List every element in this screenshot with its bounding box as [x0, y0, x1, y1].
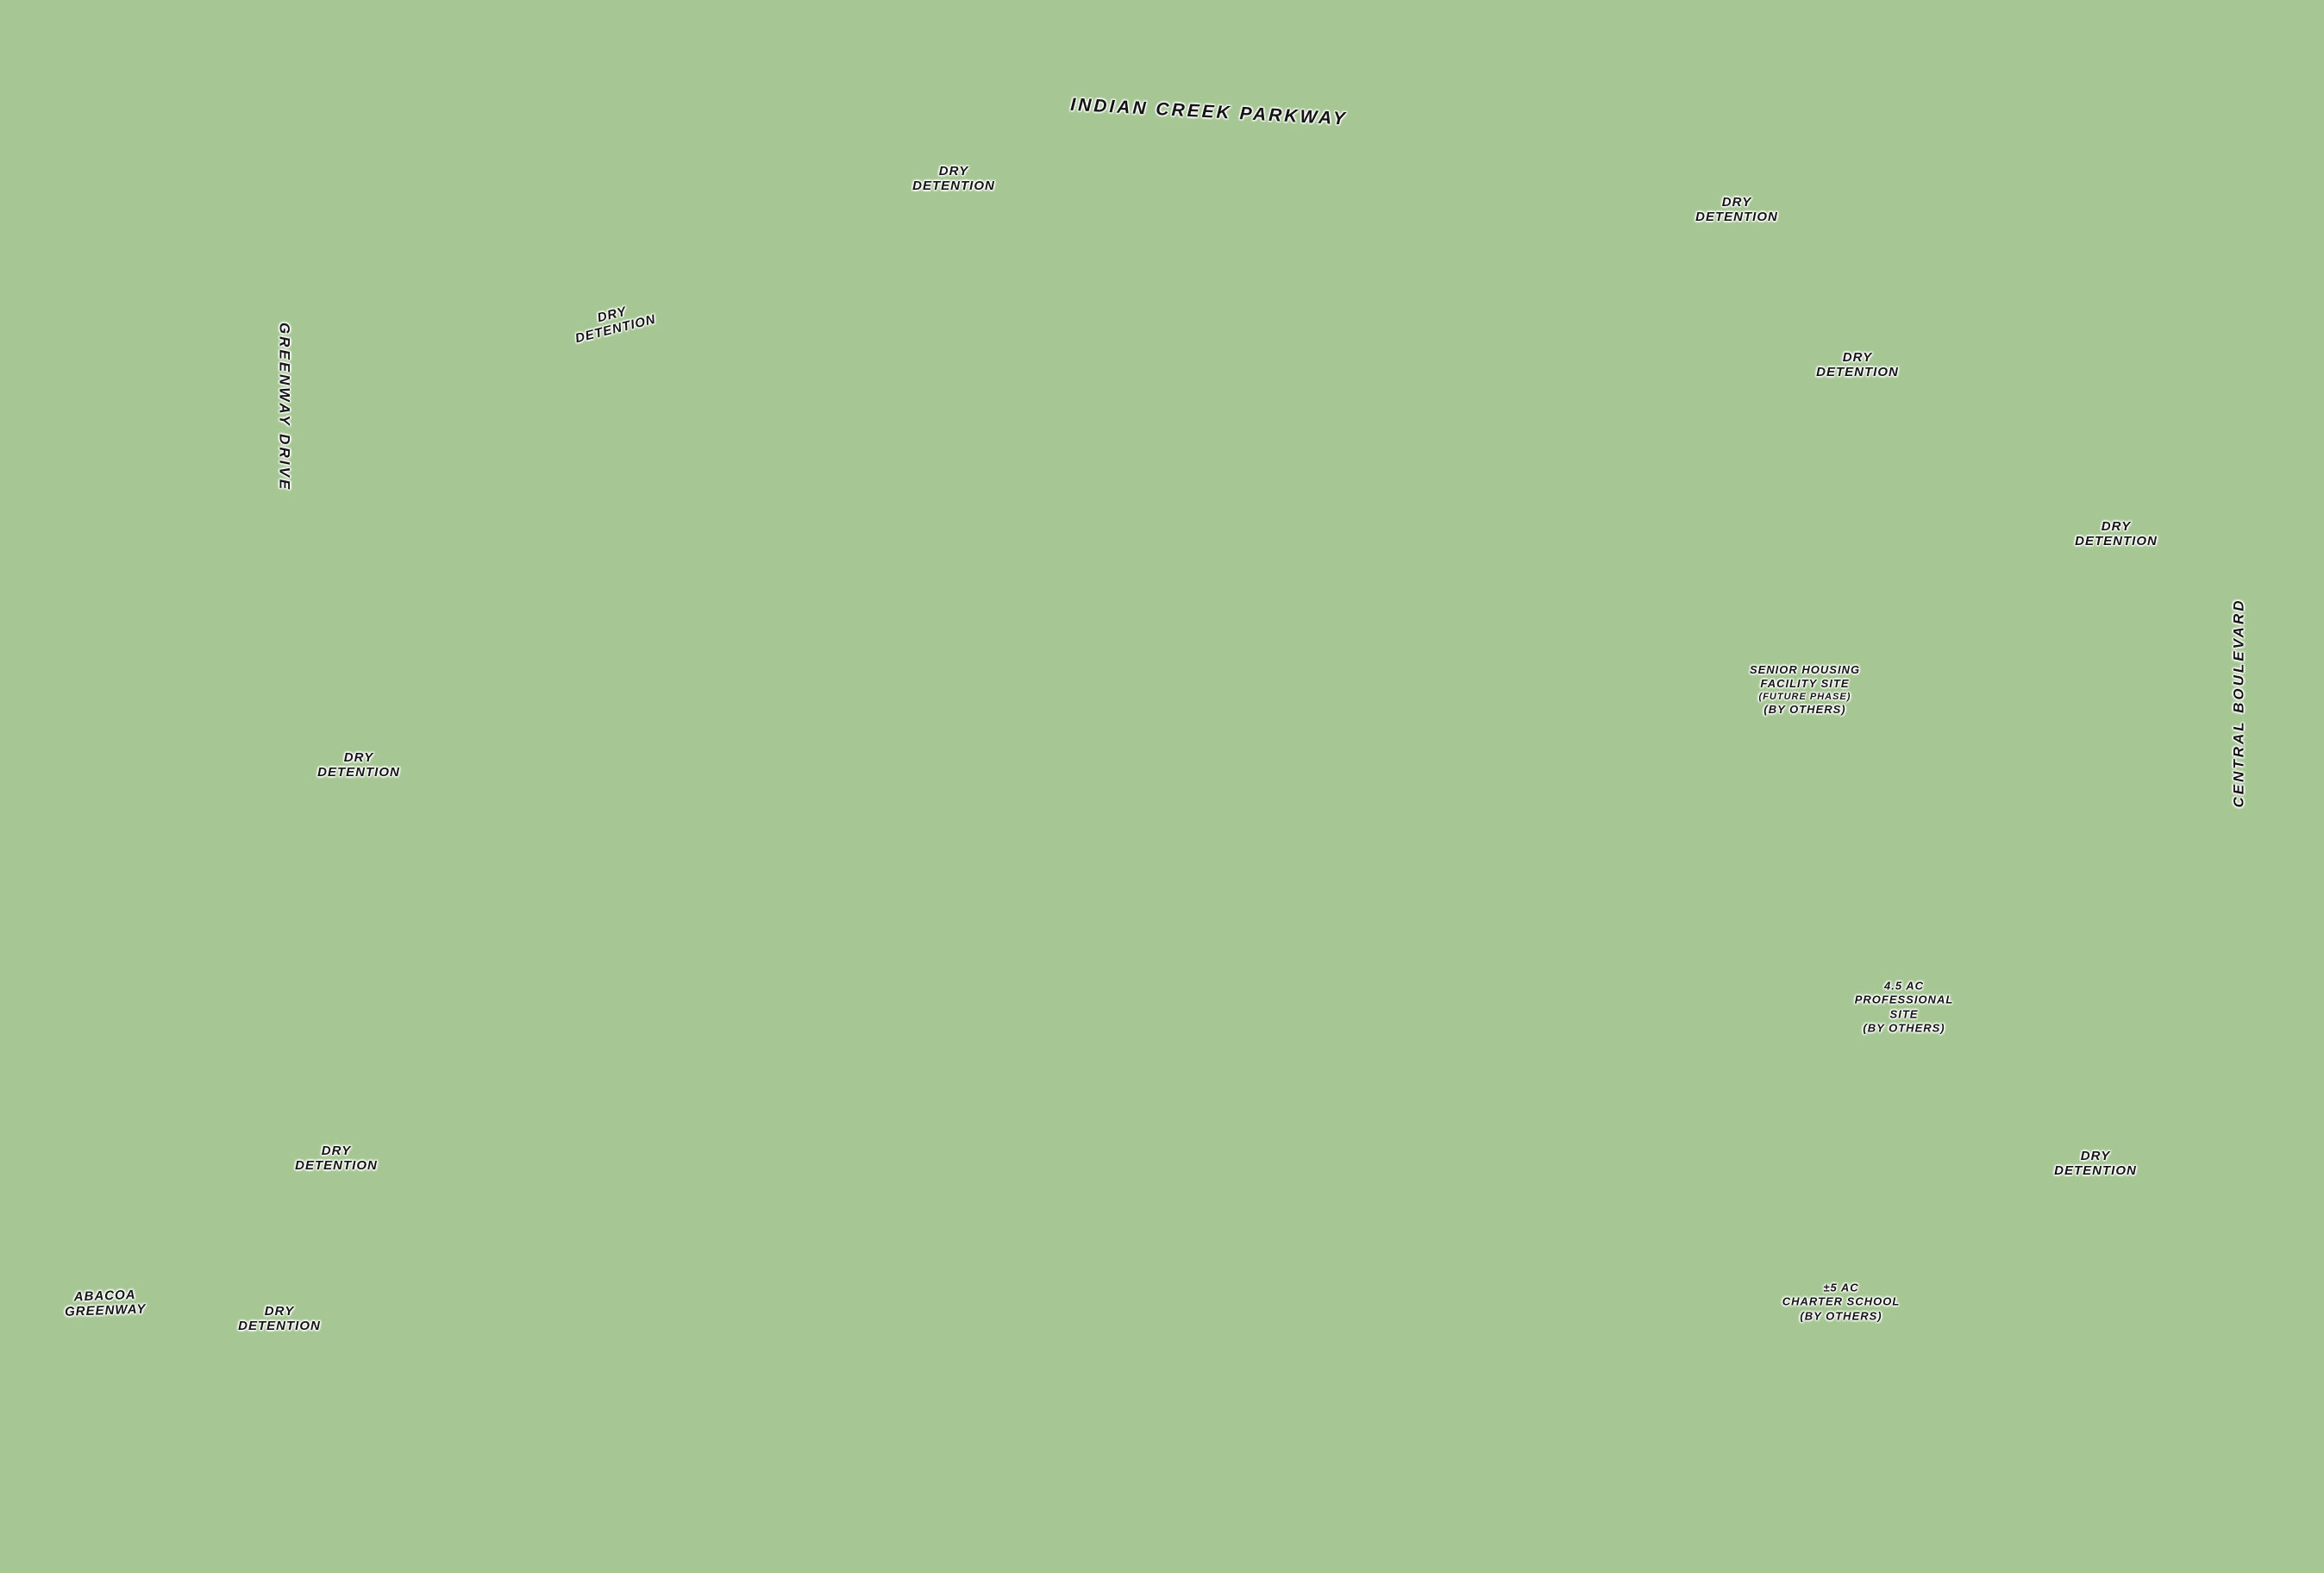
site-label-senior-housing: SENIOR HOUSING FACILITY SITE (FUTURE PHA…	[1736, 663, 1874, 718]
area-label-dry-detention-9: DRY DETENTION	[2054, 1150, 2137, 1179]
site-label-professional: 4.5 AC PROFESSIONAL SITE (BY OTHERS)	[1848, 980, 1960, 1036]
area-label-dry-detention-6: DRY DETENTION	[317, 751, 400, 780]
area-label-dry-detention-5: DRY DETENTION	[2075, 520, 2158, 549]
area-label-dry-detention-8: DRY DETENTION	[238, 1305, 321, 1334]
area-label-dry-detention-3: DRY DETENTION	[1695, 196, 1778, 225]
site-plan-canvas	[0, 0, 2324, 1573]
site-plan-map: INDIAN CREEK PARKWAY GREENWAY DRIVE CENT…	[0, 0, 2324, 1573]
street-label-central-boulevard: CENTRAL BOULEVARD	[2230, 598, 2246, 807]
area-label-dry-detention-1: DRY DETENTION	[912, 165, 995, 194]
street-label-greenway-drive: GREENWAY DRIVE	[276, 323, 292, 492]
area-label-dry-detention-4: DRY DETENTION	[1816, 351, 1899, 380]
site-label-charter-school: ±5 AC CHARTER SCHOOL (BY OTHERS)	[1776, 1282, 1906, 1324]
area-label-dry-detention-7: DRY DETENTION	[295, 1144, 378, 1174]
area-label-abacoa-greenway: ABACOA GREENWAY	[48, 1288, 161, 1320]
